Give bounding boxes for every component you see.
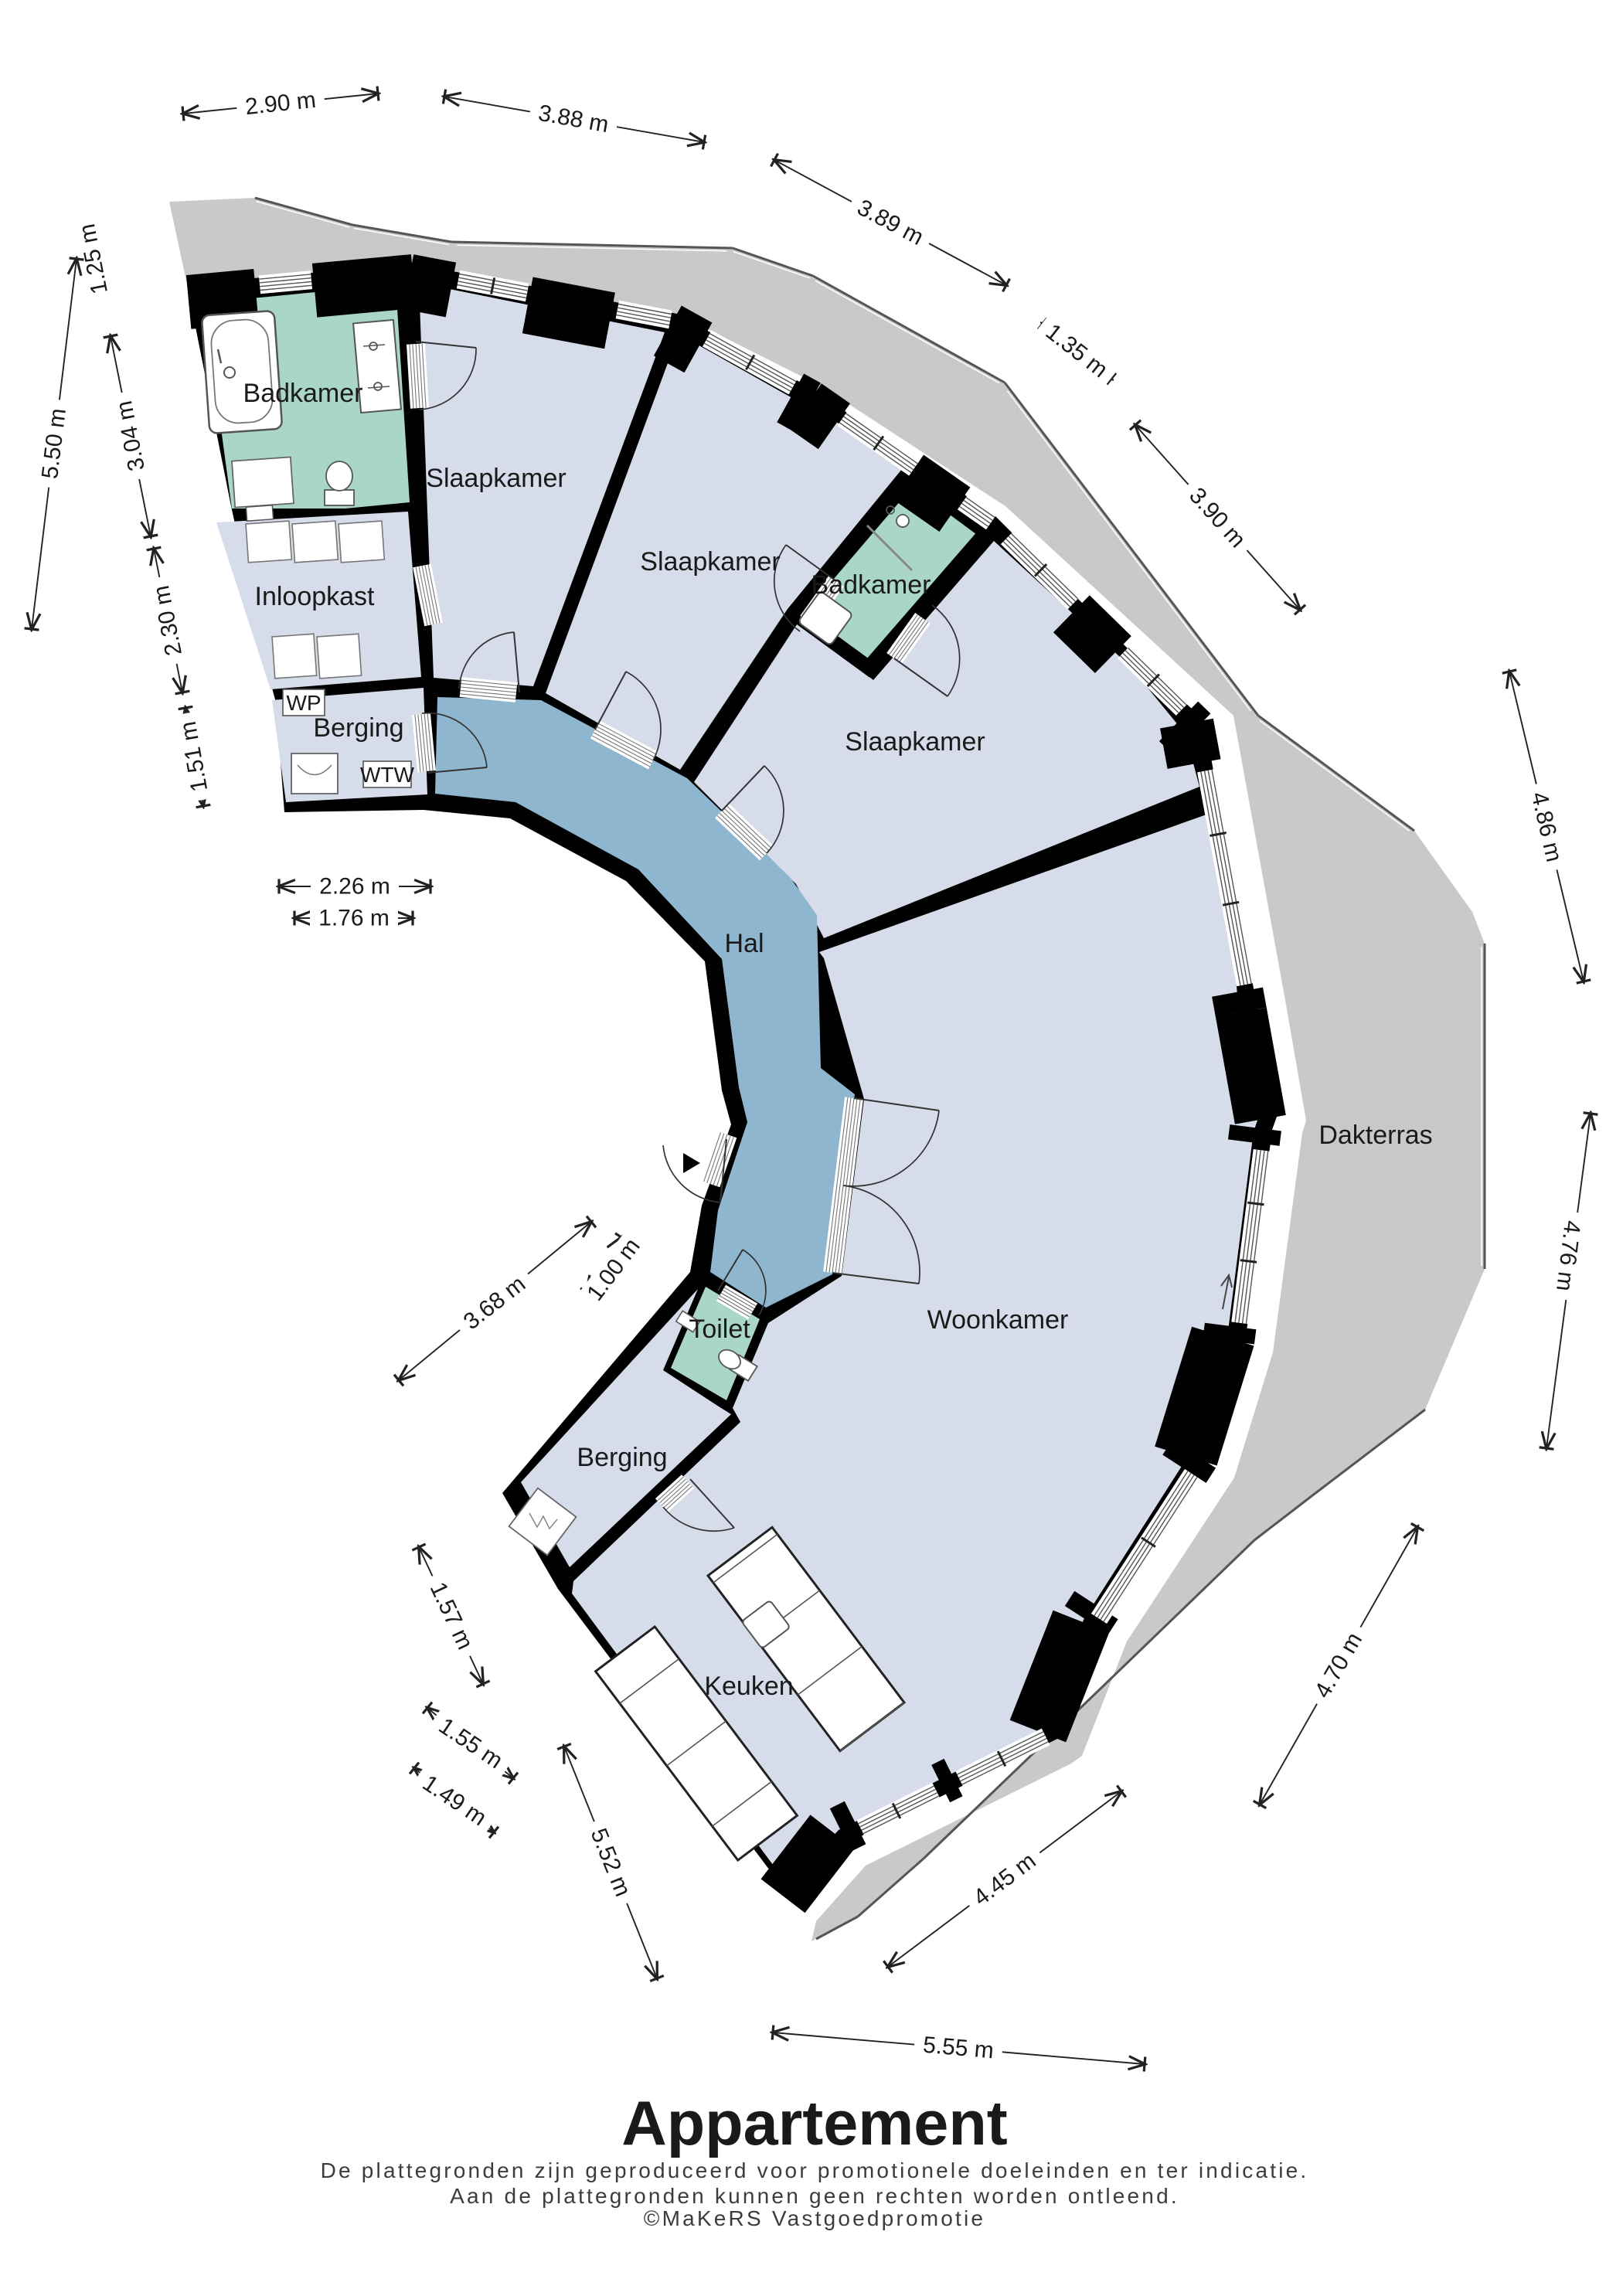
svg-text:1.76 m: 1.76 m [318,906,390,931]
svg-text:Dakterras: Dakterras [1318,1121,1432,1150]
svg-text:WP: WP [286,691,321,715]
svg-text:De plattegronden zijn geproduc: De plattegronden zijn geproduceerd voor … [321,2158,1309,2182]
svg-text:Toilet: Toilet [689,1315,750,1344]
svg-text:Inloopkast: Inloopkast [255,582,376,611]
svg-text:Slaapkamer: Slaapkamer [640,547,780,577]
svg-text:Appartement: Appartement [621,2089,1008,2158]
svg-text:Hal: Hal [724,929,764,958]
svg-text:2.26 m: 2.26 m [319,874,390,900]
svg-text:WTW: WTW [360,763,415,787]
svg-text:Badkamer: Badkamer [811,570,931,600]
svg-text:Slaapkamer: Slaapkamer [845,727,985,757]
svg-text:©MaKeRS Vastgoedpromotie: ©MaKeRS Vastgoedpromotie [644,2206,985,2230]
svg-text:Berging: Berging [313,713,403,743]
svg-text:Badkamer: Badkamer [243,379,363,408]
svg-text:Berging: Berging [577,1443,667,1472]
svg-text:Slaapkamer: Slaapkamer [426,464,566,493]
svg-text:Woonkamer: Woonkamer [927,1305,1069,1335]
svg-text:Keuken: Keuken [704,1672,793,1701]
svg-text:Aan de plattegronden kunnen ge: Aan de plattegronden kunnen geen rechten… [450,2184,1179,2208]
